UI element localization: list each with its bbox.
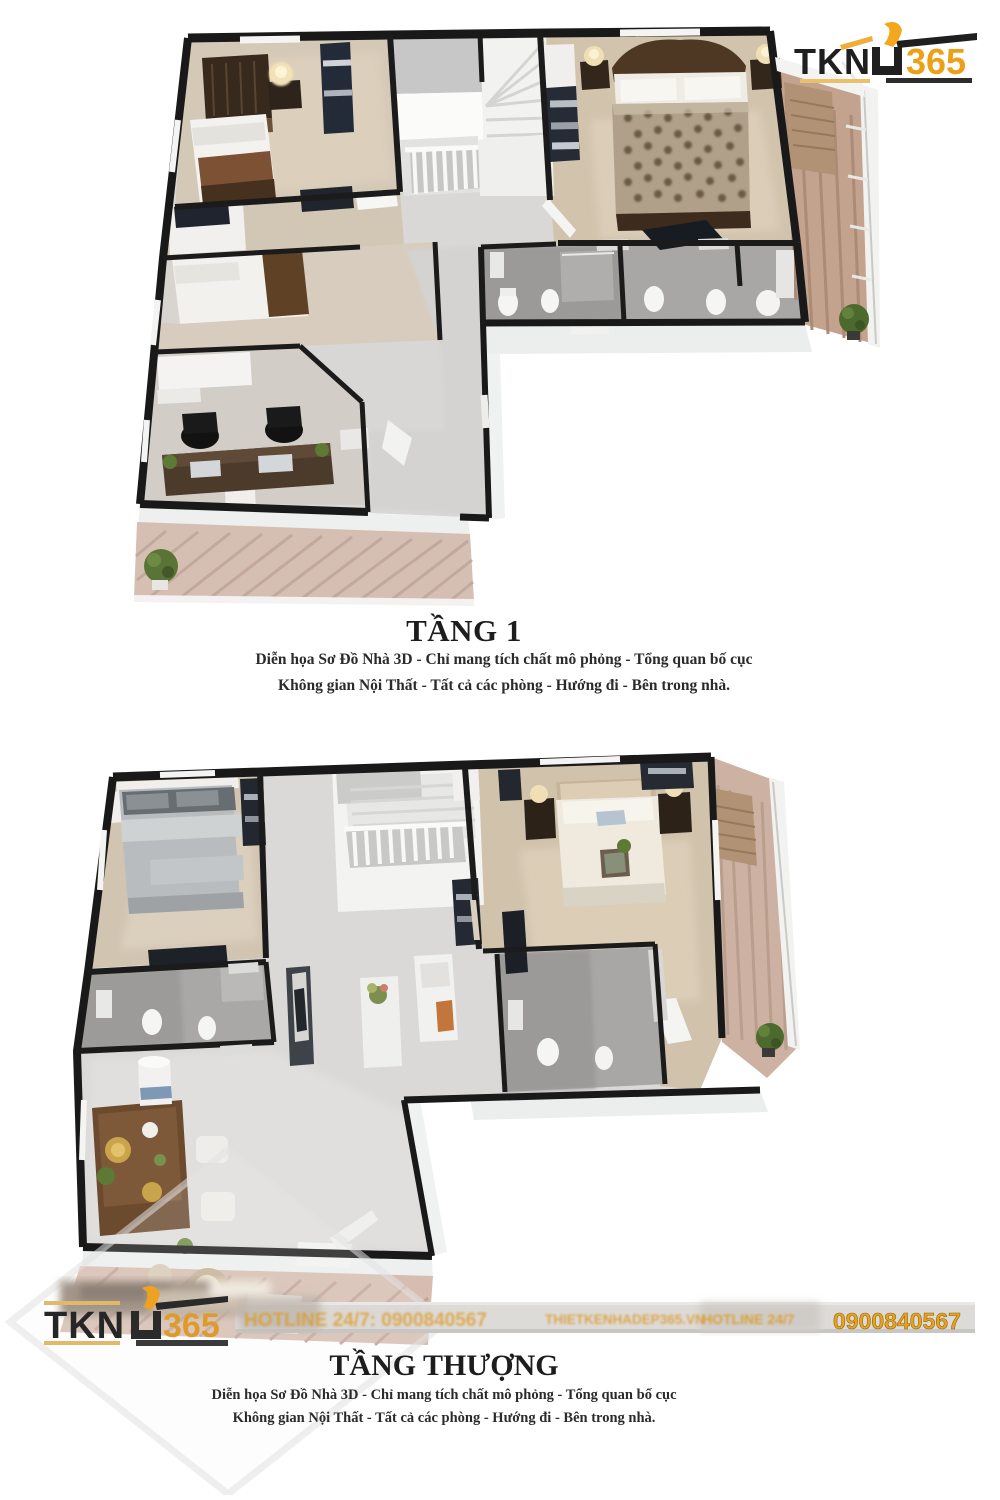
svg-text:HOTLINE 24/7: HOTLINE 24/7 xyxy=(702,1311,795,1327)
svg-text:TKN: TKN xyxy=(44,1305,125,1347)
svg-text:Không gian Nội Thất - Tất cả c: Không gian Nội Thất - Tất cả các phòng -… xyxy=(278,677,730,694)
svg-text:Diễn họa Sơ Đồ Nhà 3D - Chỉ ma: Diễn họa Sơ Đồ Nhà 3D - Chỉ mang tích ch… xyxy=(255,651,752,668)
svg-text:HOTLINE 24/7: 0900840567: HOTLINE 24/7: 0900840567 xyxy=(244,1310,487,1331)
svg-text:THIETKENHADEP365.VN: THIETKENHADEP365.VN xyxy=(545,1312,705,1327)
svg-text:0900840567: 0900840567 xyxy=(833,1308,961,1334)
svg-text:TẦNG THƯỢNG: TẦNG THƯỢNG xyxy=(329,1348,558,1382)
svg-text:365: 365 xyxy=(906,41,966,82)
svg-text:365: 365 xyxy=(163,1307,220,1345)
svg-text:Không gian Nội Thất - Tất cả c: Không gian Nội Thất - Tất cả các phòng -… xyxy=(233,1410,656,1426)
svg-text:TKN: TKN xyxy=(794,41,871,82)
svg-text:TẦNG 1: TẦNG 1 xyxy=(406,612,522,648)
svg-text:Diễn họa Sơ Đồ Nhà 3D - Chỉ ma: Diễn họa Sơ Đồ Nhà 3D - Chỉ mang tích ch… xyxy=(212,1387,678,1403)
